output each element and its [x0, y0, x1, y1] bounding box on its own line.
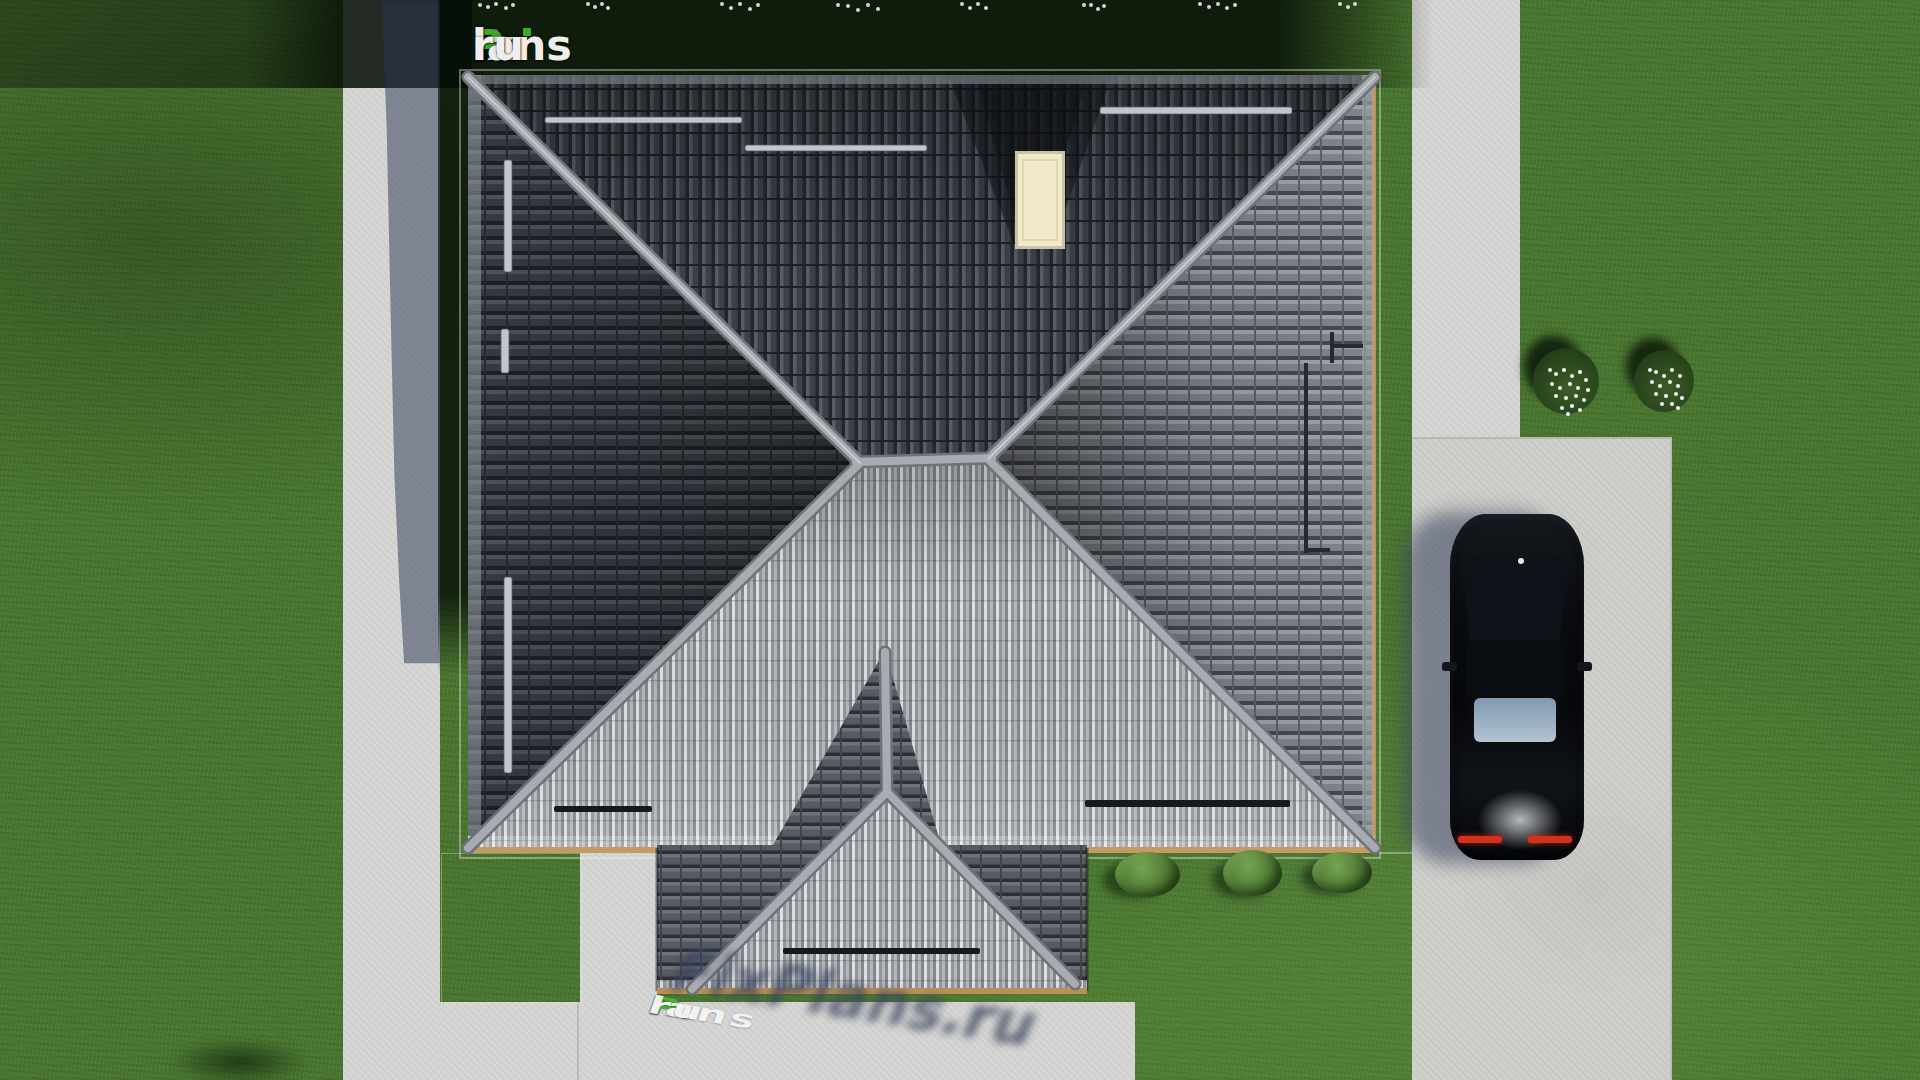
car-taillight-right: [1528, 836, 1572, 843]
car-antenna: [1518, 558, 1524, 564]
fence-flowers: [720, 2, 724, 6]
flower-bush: [1533, 348, 1599, 414]
flower-bush: [1634, 350, 1694, 412]
flower-dots: [1648, 368, 1652, 372]
fence-flowers: [960, 2, 964, 6]
car-mirror-left: [1442, 662, 1457, 671]
black-car: [1448, 514, 1586, 862]
fence-flowers: [1082, 3, 1086, 7]
car-rear-window: [1474, 698, 1556, 742]
logo-i-dot-green: [523, 28, 531, 36]
car-roof: [1466, 640, 1564, 698]
green-shrub: [1312, 852, 1372, 893]
green-shrub: [1223, 850, 1282, 896]
car-mirror-right: [1577, 662, 1592, 671]
eave-north: [468, 75, 1375, 84]
green-shrub: [1115, 852, 1180, 897]
hip-roof-house: [0, 0, 1920, 1080]
fence-flowers: [478, 3, 482, 7]
car-windshield: [1462, 558, 1568, 644]
eave-west: [468, 75, 481, 850]
logo-part-ru: ru: [472, 22, 524, 68]
aerial-house-render: FixPlans.ru FixPlans.ru FixPlans.ru: [0, 0, 1920, 1080]
flower-dots: [1548, 368, 1552, 372]
fence-flowers: [1198, 2, 1202, 6]
fascia-east: [1372, 75, 1376, 850]
fence-flowers: [836, 3, 840, 7]
car-taillight-left: [1458, 836, 1502, 843]
fence-flowers: [1338, 2, 1342, 6]
skylight: [1015, 151, 1065, 249]
fence-flowers: [586, 2, 590, 6]
